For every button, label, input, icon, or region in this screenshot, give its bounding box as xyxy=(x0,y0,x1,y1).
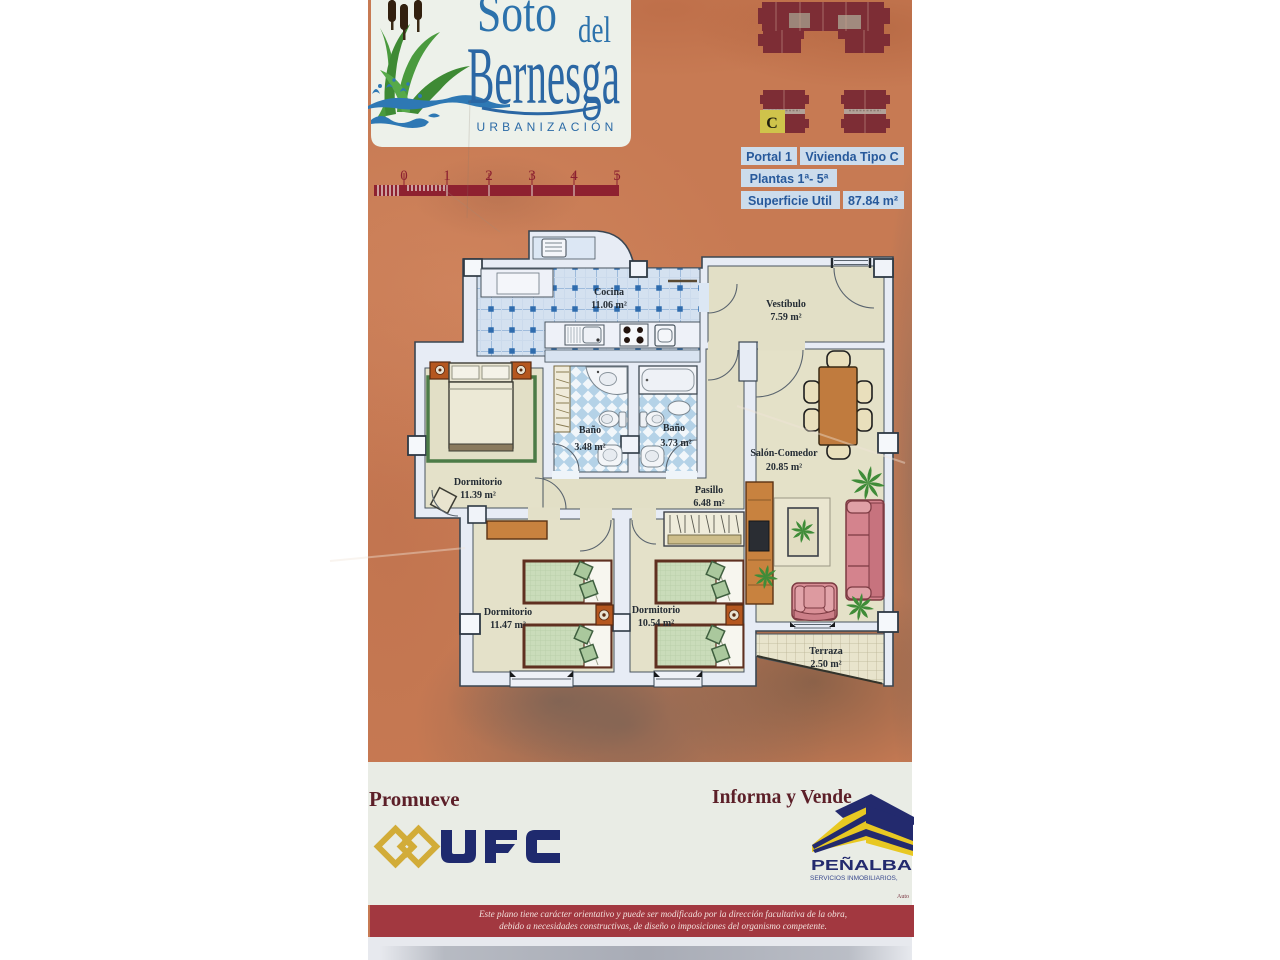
svg-text:Dormitorio: Dormitorio xyxy=(454,477,502,488)
svg-text:Baño: Baño xyxy=(663,423,685,434)
svg-text:URBANIZACIÓN: URBANIZACIÓN xyxy=(476,119,617,134)
svg-text:Auto: Auto xyxy=(897,894,909,900)
svg-text:Salón-Comedor: Salón-Comedor xyxy=(750,448,818,459)
svg-text:6.48 m²: 6.48 m² xyxy=(693,498,724,509)
svg-text:3.48 m²: 3.48 m² xyxy=(574,442,605,453)
svg-text:Informa y Vende: Informa y Vende xyxy=(712,787,852,808)
svg-text:SERVICIOS INMOBILIARIOS,: SERVICIOS INMOBILIARIOS, xyxy=(810,875,898,882)
svg-text:Portal 1: Portal 1 xyxy=(746,150,792,164)
svg-text:11.47 m²: 11.47 m² xyxy=(490,620,526,631)
svg-text:debido a necesidades construct: debido a necesidades constructivas, de d… xyxy=(499,921,827,931)
svg-text:2.50 m²: 2.50 m² xyxy=(810,659,841,670)
svg-text:Promueve: Promueve xyxy=(369,787,460,811)
svg-text:7.59 m²: 7.59 m² xyxy=(770,312,801,323)
svg-text:20.85 m²: 20.85 m² xyxy=(766,462,802,473)
svg-text:Cocina: Cocina xyxy=(594,287,624,298)
svg-text:11.06 m²: 11.06 m² xyxy=(591,300,627,311)
svg-text:11.39 m²: 11.39 m² xyxy=(460,490,496,501)
svg-text:Plantas 1ª- 5ª: Plantas 1ª- 5ª xyxy=(750,172,829,186)
svg-text:Este plano tiene carácter orie: Este plano tiene carácter orientativo y … xyxy=(478,909,847,919)
svg-text:Baño: Baño xyxy=(579,425,601,436)
svg-text:Dormitorio: Dormitorio xyxy=(632,605,680,616)
svg-text:Vivienda Tipo C: Vivienda Tipo C xyxy=(805,150,898,164)
svg-text:87.84 m²: 87.84 m² xyxy=(848,194,898,208)
svg-text:10.54 m²: 10.54 m² xyxy=(638,618,674,629)
svg-text:C: C xyxy=(766,115,778,132)
svg-text:PEÑALBA: PEÑALBA xyxy=(811,856,912,874)
svg-text:Pasillo: Pasillo xyxy=(695,485,723,496)
svg-text:3.73 m²: 3.73 m² xyxy=(660,438,691,449)
svg-text:Dormitorio: Dormitorio xyxy=(484,607,532,618)
svg-text:Vestíbulo: Vestíbulo xyxy=(766,299,806,310)
svg-text:Terraza: Terraza xyxy=(809,646,843,657)
svg-text:Superficie Util: Superficie Util xyxy=(748,194,832,208)
